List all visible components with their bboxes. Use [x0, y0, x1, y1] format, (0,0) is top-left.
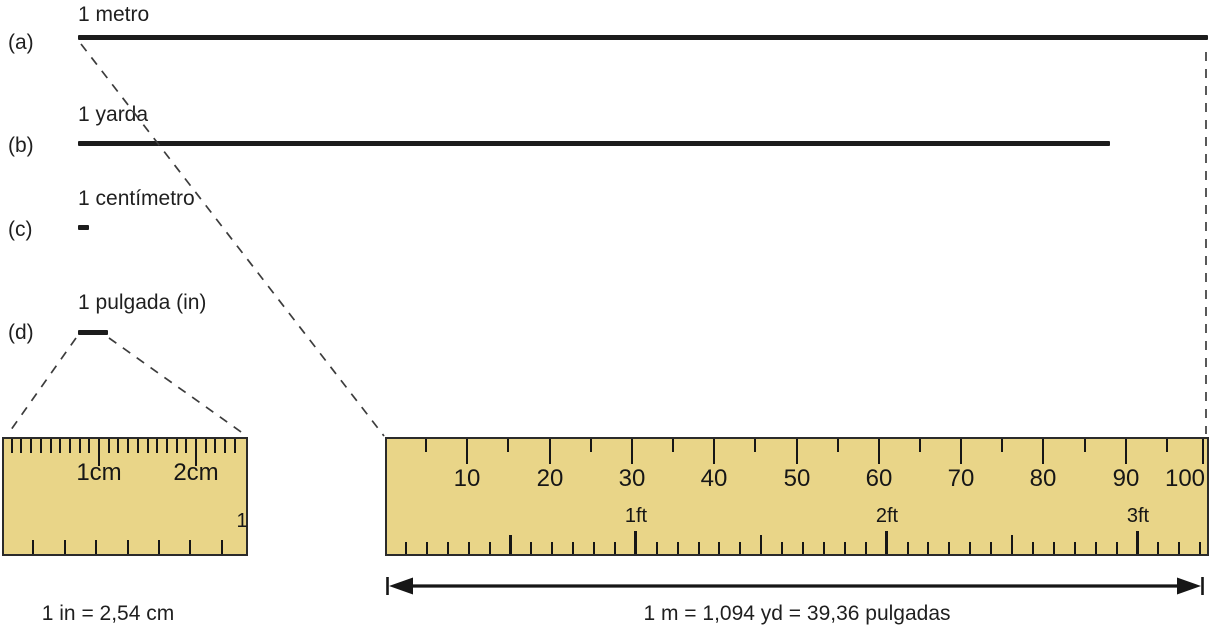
cm10-tick: [796, 439, 799, 464]
half-foot-tick: [1011, 535, 1014, 554]
ft-label-3: 3ft: [1098, 505, 1178, 527]
cm10-tick: [878, 439, 881, 464]
mm-tick: [11, 439, 13, 453]
eighth-inch-tick: [95, 540, 97, 554]
cm5-tick: [1001, 439, 1003, 452]
cm5-tick: [590, 439, 592, 452]
mm-tick: [185, 439, 187, 453]
inch-1-label: 1: [202, 510, 282, 532]
cm10-tick: [549, 439, 552, 464]
inch-tick: [656, 542, 658, 554]
cm5-tick: [754, 439, 756, 452]
mm-tick: [176, 439, 178, 453]
cm-number-70: 70: [921, 466, 1001, 492]
inch-tick: [802, 542, 804, 554]
foot-tick: [885, 531, 888, 554]
mm-tick: [205, 439, 207, 453]
cm-number-10: 10: [427, 466, 507, 492]
mm-tick: [224, 439, 226, 453]
inch-tick: [593, 542, 595, 554]
inch-tick: [865, 542, 867, 554]
mm-tick: [127, 439, 129, 453]
cm5-tick: [1166, 439, 1168, 452]
small-cm-inch-ruler: 1cm2cm1: [2, 437, 248, 556]
inch-tick: [468, 542, 470, 554]
mm-tick: [137, 439, 139, 453]
mm-tick: [59, 439, 61, 453]
inch-tick: [698, 542, 700, 554]
inch-tick: [990, 542, 992, 554]
row-c-tag: (c): [8, 218, 33, 242]
foot-tick: [1136, 531, 1139, 554]
inch-tick: [614, 542, 616, 554]
meter-span-arrow: [388, 577, 1203, 595]
inch-tick: [948, 542, 950, 554]
eighth-inch-tick: [189, 540, 191, 554]
mm-tick: [30, 439, 32, 453]
inch-tick: [1032, 542, 1034, 554]
mm-tick: [50, 439, 52, 453]
row-b-tag: (b): [8, 134, 34, 158]
row-d-unit-label: 1 pulgada (in): [78, 291, 206, 315]
half-foot-tick: [760, 535, 763, 554]
mm-tick: [40, 439, 42, 453]
mm-tick: [108, 439, 110, 453]
cm5-tick: [1084, 439, 1086, 452]
inch-tick: [530, 542, 532, 554]
cm-number-50: 50: [757, 466, 837, 492]
eighth-inch-tick: [64, 540, 66, 554]
row-d-length-bar: [78, 330, 108, 335]
inch-tick: [781, 542, 783, 554]
mm-tick: [147, 439, 149, 453]
mm-tick: [234, 439, 236, 453]
cm10-tick: [1202, 439, 1205, 464]
inch-tick: [907, 542, 909, 554]
inch-tick: [969, 542, 971, 554]
mm-tick: [20, 439, 22, 453]
meter-stick-ruler: 1020304050607080901001ft2ft3ft: [385, 437, 1209, 556]
inch-cm-equation: 1 in = 2,54 cm: [0, 602, 216, 626]
eighth-inch-tick: [32, 540, 34, 554]
dashed-line-inch-end-to-small-ruler: [109, 338, 244, 434]
inch-tick: [823, 542, 825, 554]
inch-tick: [489, 542, 491, 554]
inch-tick: [405, 542, 407, 554]
cm-number-60: 60: [839, 466, 919, 492]
row-d-tag: (d): [8, 321, 34, 345]
meter-yard-inch-equation: 1 m = 1,094 yd = 39,36 pulgadas: [385, 602, 1209, 626]
eighth-inch-tick: [158, 540, 160, 554]
cm5-tick: [672, 439, 674, 452]
dashed-line-inch-start-to-small-ruler: [8, 338, 76, 434]
mm-tick: [69, 439, 71, 453]
ft-label-1: 1ft: [596, 505, 676, 527]
inch-tick: [1116, 542, 1118, 554]
cm-1-label: 1cm: [59, 460, 139, 486]
arrowhead-right: [1177, 578, 1201, 595]
inch-tick: [572, 542, 574, 554]
cm10-tick: [713, 439, 716, 464]
mm-tick: [79, 439, 81, 453]
arrowhead-left: [389, 578, 413, 595]
inch-tick: [927, 542, 929, 554]
half-foot-tick: [509, 535, 512, 554]
inch-tick: [1074, 542, 1076, 554]
cm-number-40: 40: [674, 466, 754, 492]
row-c-unit-label: 1 centímetro: [78, 187, 195, 211]
ft-label-2: 2ft: [847, 505, 927, 527]
row-a-unit-label: 1 metro: [78, 3, 149, 27]
row-a-length-bar: [78, 35, 1208, 40]
mm-tick: [117, 439, 119, 453]
cm-number-30: 30: [592, 466, 672, 492]
row-c-length-bar: [78, 225, 89, 230]
cm5-tick: [507, 439, 509, 452]
inch-tick: [1157, 542, 1159, 554]
inch-tick: [426, 542, 428, 554]
cm10-tick: [631, 439, 634, 464]
inch-tick: [1053, 542, 1055, 554]
cm10-tick: [1042, 439, 1045, 464]
mm-tick: [166, 439, 168, 453]
cm-number-80: 80: [1003, 466, 1083, 492]
eighth-inch-tick: [127, 540, 129, 554]
inch-tick: [677, 542, 679, 554]
mm-tick: [214, 439, 216, 453]
foot-tick: [634, 531, 637, 554]
eighth-inch-tick: [221, 540, 223, 554]
cm10-tick: [1125, 439, 1128, 464]
row-b-unit-label: 1 yarda: [78, 103, 148, 127]
row-b-length-bar: [78, 141, 1110, 146]
inch-tick: [447, 542, 449, 554]
cm-2-label: 2cm: [156, 460, 236, 486]
inch-tick: [1095, 542, 1097, 554]
cm-number-20: 20: [510, 466, 590, 492]
cm5-tick: [425, 439, 427, 452]
inch-tick: [1178, 542, 1180, 554]
inch-tick: [551, 542, 553, 554]
measurement-comparison-figure: (a)1 metro(b)1 yarda(c)1 centímetro(d)1 …: [0, 0, 1210, 631]
inch-tick: [1199, 542, 1201, 554]
cm5-tick: [919, 439, 921, 452]
inch-tick: [718, 542, 720, 554]
cm10-tick: [466, 439, 469, 464]
inch-tick: [844, 542, 846, 554]
mm-tick: [156, 439, 158, 453]
mm-tick: [88, 439, 90, 453]
cm-number-100: 100: [1145, 466, 1210, 492]
row-a-tag: (a): [8, 31, 34, 55]
inch-tick: [739, 542, 741, 554]
cm10-tick: [960, 439, 963, 464]
cm5-tick: [837, 439, 839, 452]
